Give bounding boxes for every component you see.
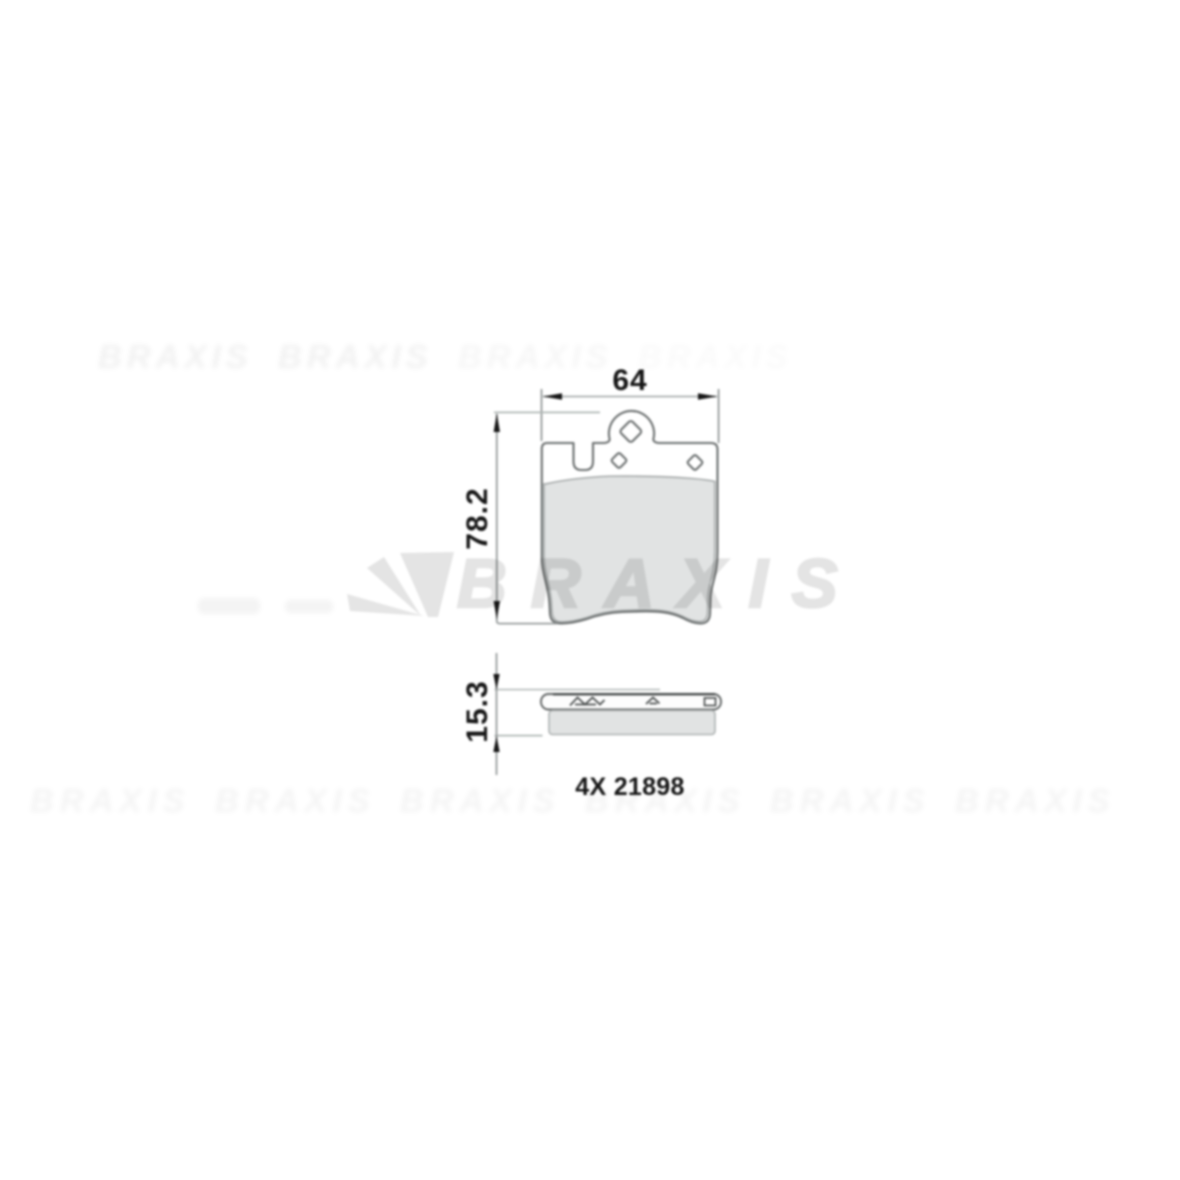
svg-text:BRAXIS: BRAXIS [278, 338, 433, 375]
svg-text:BRAXIS: BRAXIS [955, 782, 1116, 819]
svg-text:BRAXIS: BRAXIS [770, 782, 931, 819]
svg-text:BRAXIS: BRAXIS [457, 545, 862, 622]
svg-text:4X 21898: 4X 21898 [575, 773, 684, 801]
svg-text:BRAXIS: BRAXIS [458, 338, 613, 375]
svg-text:BRAXIS: BRAXIS [400, 782, 561, 819]
svg-text:BRAXIS: BRAXIS [30, 782, 191, 819]
svg-text:BRAXIS: BRAXIS [98, 338, 253, 375]
svg-text:64: 64 [612, 364, 647, 397]
svg-text:15.3: 15.3 [461, 680, 494, 742]
svg-text:78.2: 78.2 [461, 487, 494, 549]
svg-text:BRAXIS: BRAXIS [638, 338, 793, 375]
svg-text:BRAXIS: BRAXIS [215, 782, 376, 819]
